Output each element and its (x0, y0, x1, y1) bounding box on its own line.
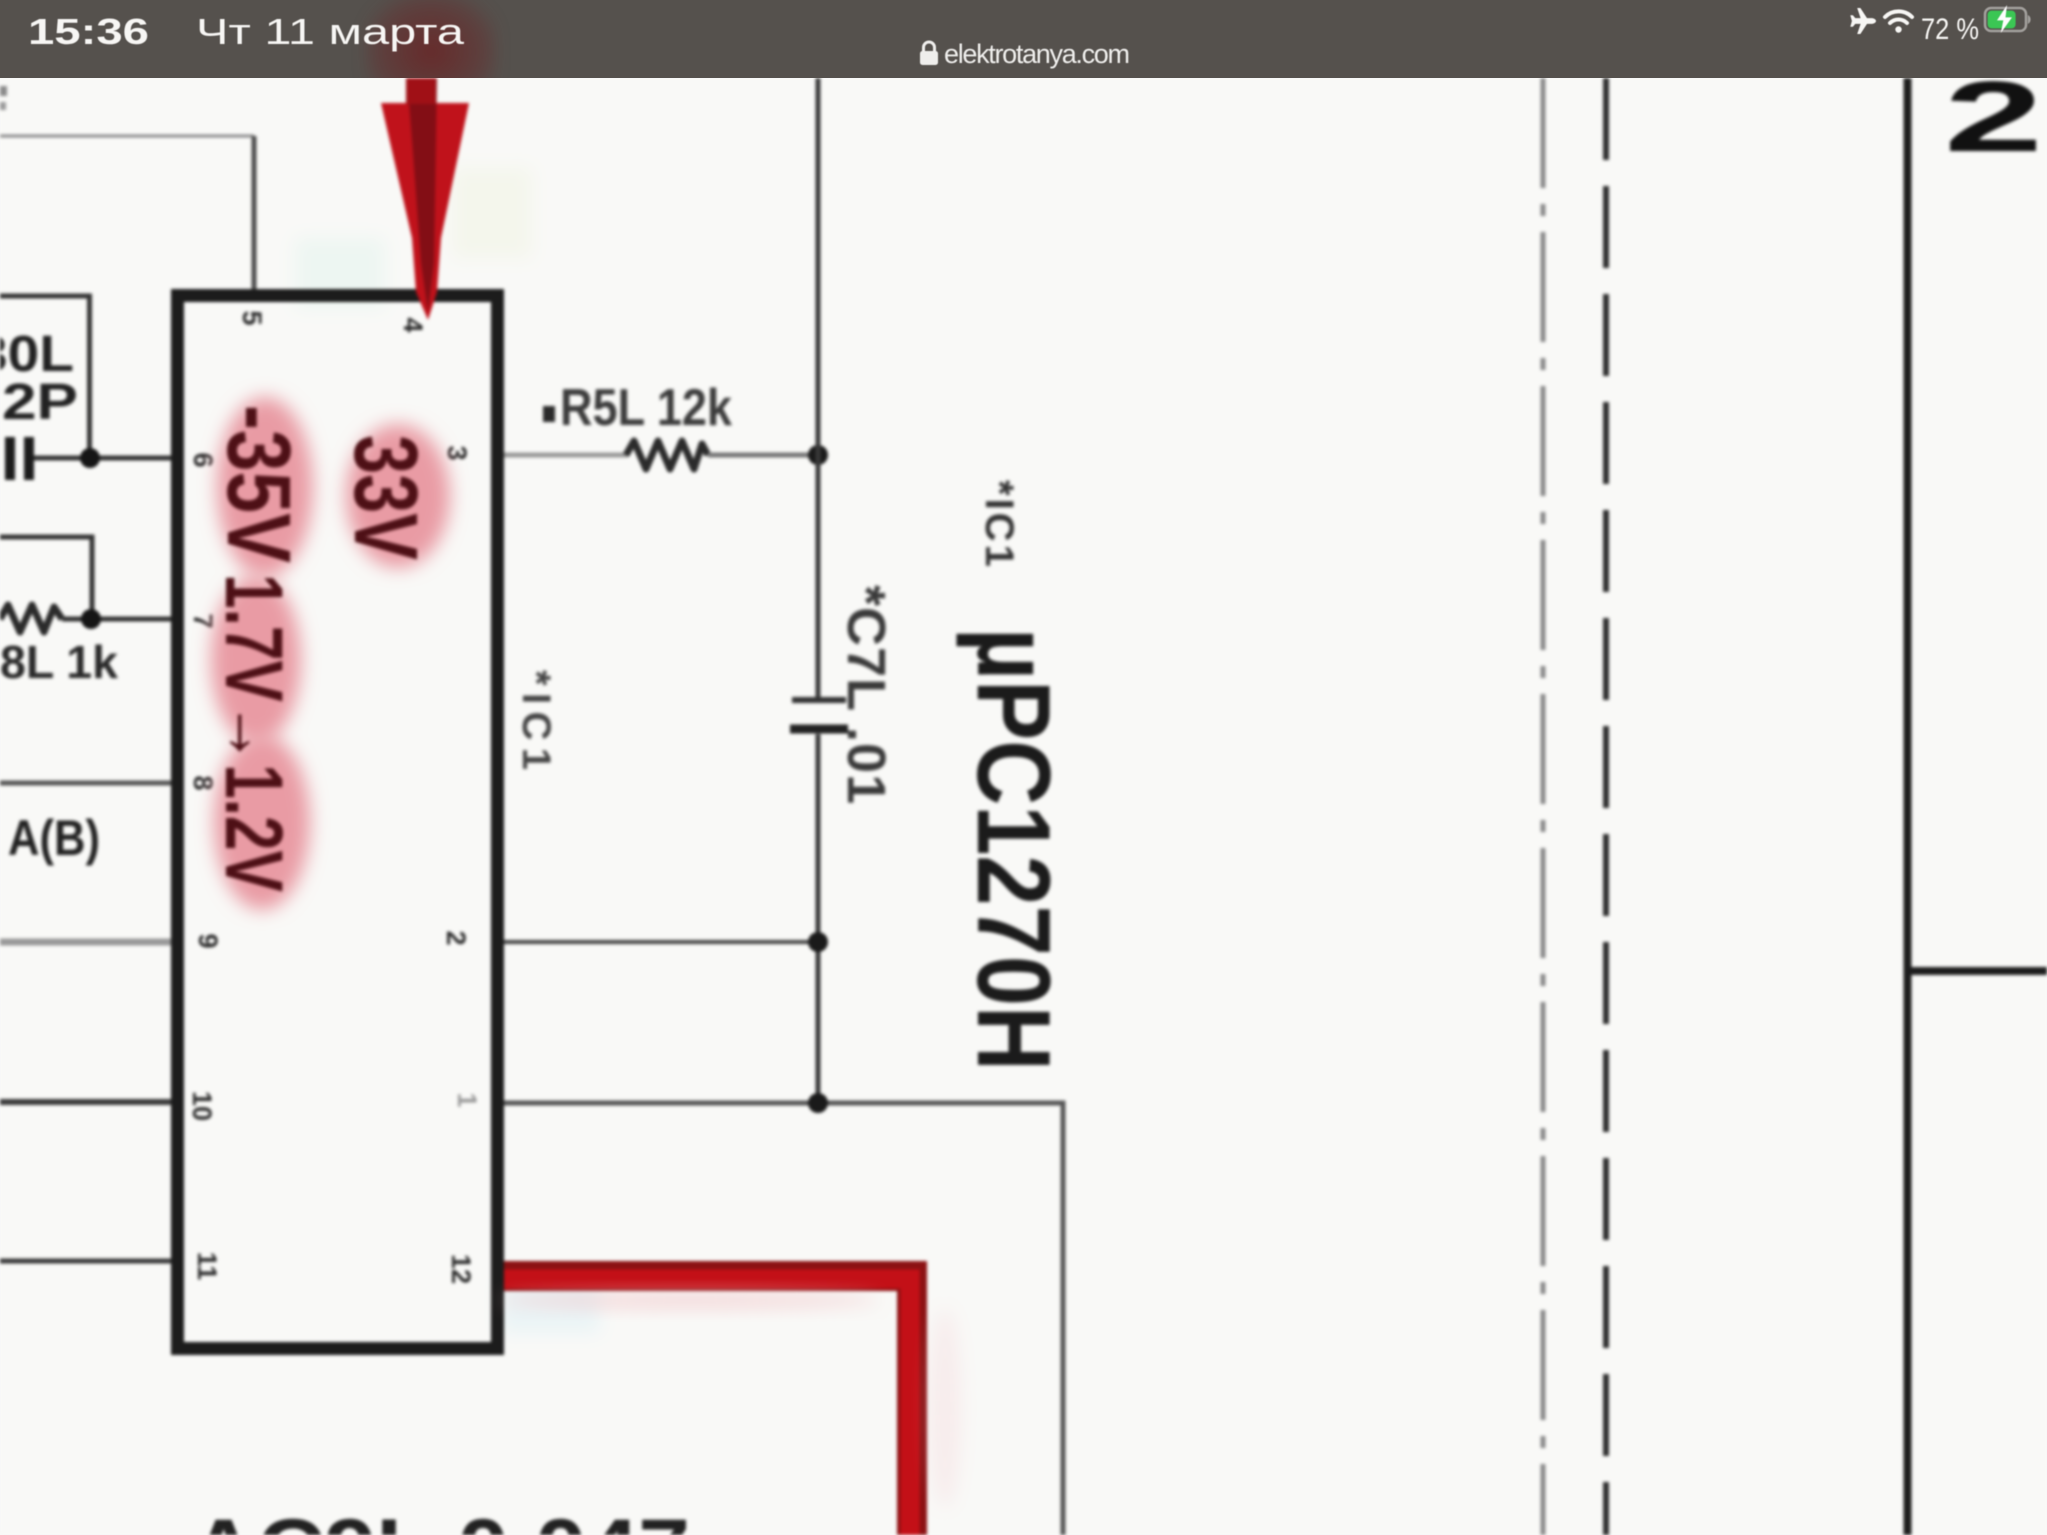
svg-text:*IC1: *IC1 (977, 480, 1021, 570)
svg-text:µPC1270H: µPC1270H (956, 628, 1072, 1071)
svg-text:5: 5 (237, 310, 267, 325)
svg-text:R5L 12k: R5L 12k (560, 379, 732, 437)
svg-text:*IC1: *IC1 (514, 670, 558, 770)
svg-text:72 %: 72 % (1921, 13, 1979, 46)
svg-text:10: 10 (187, 1091, 217, 1121)
svg-text:-35V: -35V (208, 405, 309, 563)
svg-text:3: 3 (442, 445, 472, 460)
svg-text:1: 1 (452, 1092, 482, 1107)
svg-text:11: 11 (192, 1252, 222, 1281)
svg-text:2P: 2P (2, 373, 78, 430)
svg-text:A(B): A(B) (8, 810, 100, 866)
svg-text:2: 2 (1944, 78, 2043, 172)
svg-text:8L 1k: 8L 1k (0, 636, 118, 688)
svg-text:15:36: 15:36 (28, 11, 149, 52)
svg-text:2: 2 (441, 930, 471, 945)
svg-text:12: 12 (446, 1254, 476, 1284)
svg-text:1.7V→1.2V: 1.7V→1.2V (208, 574, 299, 892)
svg-text:elektrotanya.com: elektrotanya.com (944, 39, 1130, 69)
svg-text:33V: 33V (335, 435, 435, 560)
svg-text:Чт 11 марта: Чт 11 марта (196, 11, 465, 52)
svg-text:9: 9 (193, 933, 223, 948)
svg-text:AC9L 0.047: AC9L 0.047 (190, 1502, 690, 1535)
svg-text:4: 4 (398, 317, 428, 332)
svg-text:*C7L .01: *C7L .01 (836, 585, 896, 805)
